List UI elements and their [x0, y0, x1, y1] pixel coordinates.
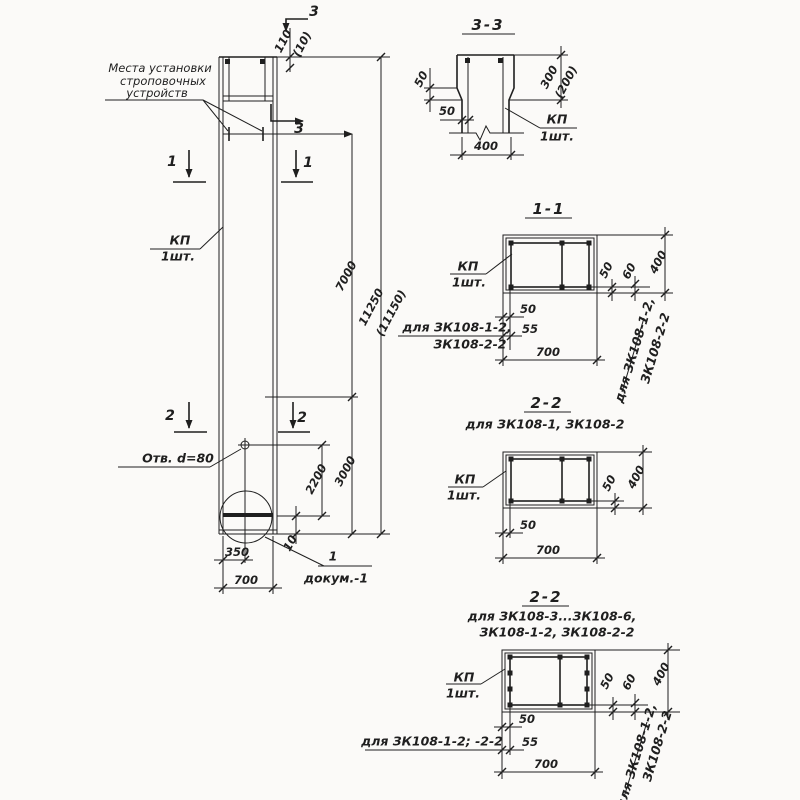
strop-callout-line3: устройств	[126, 86, 187, 100]
s33-kp-label: КП	[547, 112, 568, 127]
mark-3-top: 3	[309, 4, 319, 20]
s22b-dim-50: 50	[519, 712, 535, 726]
s22a-dim-700: 700	[536, 543, 560, 557]
s11-dim-50: 50	[520, 302, 536, 316]
hole-callout: Отв. d=80	[142, 451, 214, 466]
mark-1-right: 1	[303, 155, 313, 171]
s22b-dim-55: 55	[522, 735, 538, 749]
detail-doc-ref: докум.-1	[304, 571, 368, 586]
s33-kp-qty: 1шт.	[540, 129, 574, 144]
s11-kp-qty: 1шт.	[452, 275, 486, 290]
strop-callout-line1: Места установки	[108, 61, 211, 75]
dim-700-elevation: 700	[234, 573, 258, 587]
s22b-subtitle-1: для ЗК108-3...ЗК108-6,	[468, 609, 637, 624]
mark-2-right: 2	[297, 410, 307, 426]
column-kp-label: КП	[170, 233, 191, 248]
s11-note-left-1: для ЗК108-1-2,	[402, 320, 511, 335]
column-kp-qty: 1шт.	[161, 249, 195, 264]
s11-note-left-2: ЗК108-2-2	[434, 337, 507, 352]
detail-ref-number: 1	[329, 549, 338, 564]
drawing-canvas	[0, 0, 800, 800]
s33-dim-50h: 50	[439, 104, 455, 118]
s22a-subtitle: для ЗК108-1, ЗК108-2	[466, 417, 625, 432]
s33-dim-400: 400	[474, 139, 498, 153]
section-11-title: 1-1	[532, 200, 565, 218]
column-elevation	[219, 57, 352, 563]
s11-dim-700: 700	[536, 345, 560, 359]
s22a-dim-50: 50	[520, 518, 536, 532]
s22b-kp-label: КП	[454, 670, 475, 685]
drawing-sheet: Места установки строповочных устройств К…	[0, 0, 800, 800]
section-33-title: 3-3	[471, 16, 504, 34]
s22a-kp-label: КП	[455, 472, 476, 487]
s22b-kp-qty: 1шт.	[446, 686, 480, 701]
mark-2-left: 2	[165, 408, 175, 424]
section-22a-title: 2-2	[530, 394, 563, 412]
s11-dim-55: 55	[522, 322, 538, 336]
s22b-dim-700: 700	[534, 757, 558, 771]
s22b-subtitle-2: ЗК108-1-2, ЗК108-2-2	[479, 625, 634, 640]
section-22b-title: 2-2	[529, 588, 562, 606]
dim-350: 350	[225, 545, 249, 559]
leader-lines	[105, 100, 372, 566]
mark-3-low: 3	[294, 121, 304, 137]
s11-kp-label: КП	[458, 259, 479, 274]
mark-1-left: 1	[167, 154, 177, 170]
s22a-kp-qty: 1шт.	[447, 488, 481, 503]
s22b-note-left: для ЗК108-1-2; -2-2	[361, 734, 503, 749]
